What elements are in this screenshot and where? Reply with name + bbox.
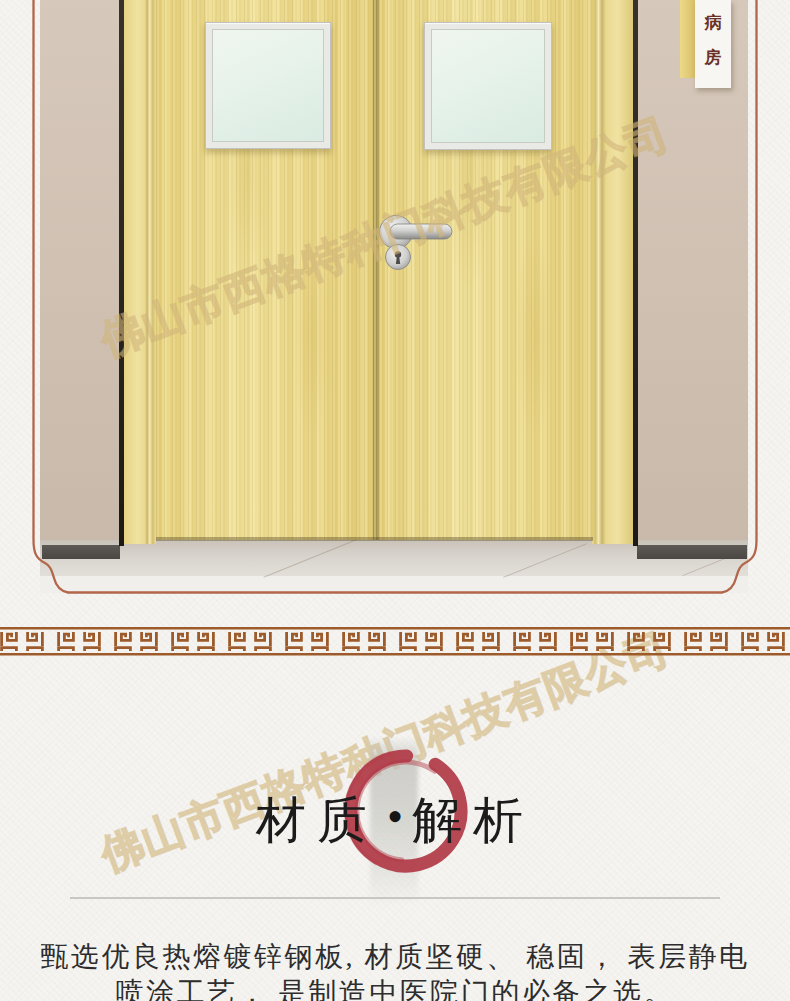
title-right: 解析 xyxy=(412,793,534,848)
description-line-2: 喷涂工艺， 是制造中医院门的必备之选。 xyxy=(0,976,790,1001)
meander-pattern-border xyxy=(0,627,790,656)
section-title: 材质•解析 xyxy=(0,793,790,848)
title-dot: • xyxy=(387,791,403,842)
decorative-frame-line xyxy=(0,0,790,600)
product-page: 病 房 佛山市西格特种门科技有限公司 佛山市西格特种门科技有限公司 材质•解析 … xyxy=(0,0,790,1001)
divider-line xyxy=(70,897,720,899)
description-line-1: 甄选优良热熔镀锌钢板, 材质坚硬、 稳固， 表层静电 xyxy=(0,940,790,974)
title-left: 材质 xyxy=(256,793,378,848)
